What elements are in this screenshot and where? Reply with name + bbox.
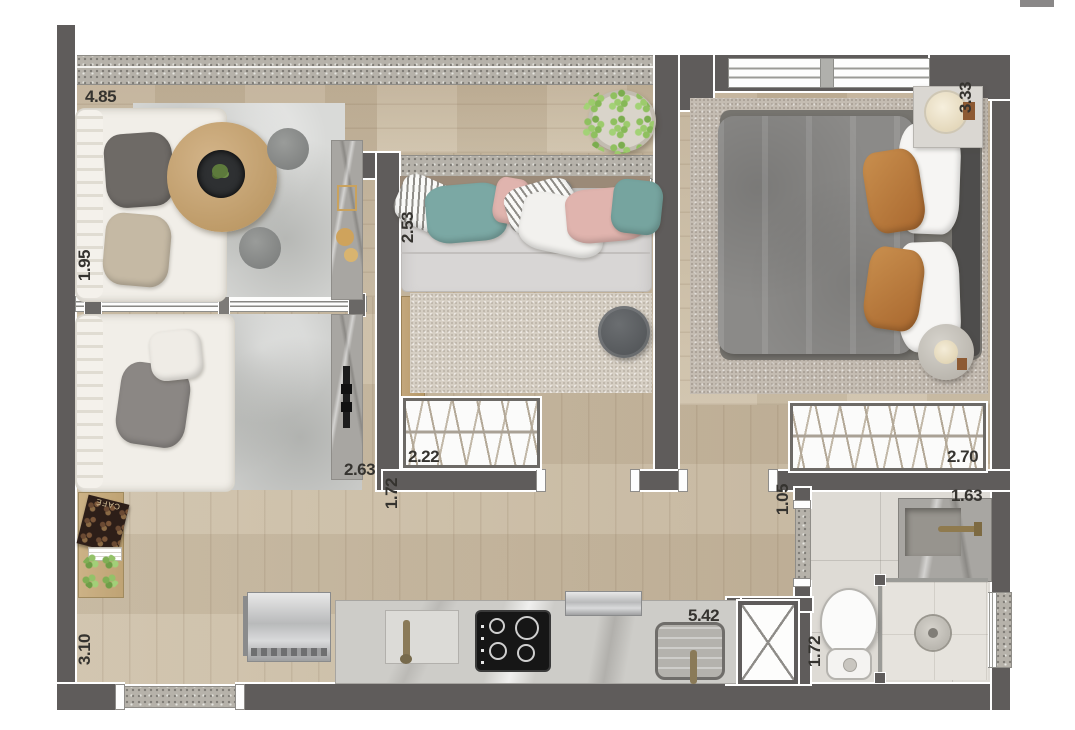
balcony-console xyxy=(331,140,363,300)
shower-glass-post-2 xyxy=(874,672,886,684)
counter-faucet xyxy=(403,620,410,658)
sideboard-plant xyxy=(80,552,122,592)
refrigerator-handle xyxy=(243,596,247,656)
pouf-gray-2 xyxy=(239,227,281,269)
bedroom1-door-jamb-left xyxy=(678,469,688,492)
dim-living-width: 2.63 xyxy=(344,461,375,478)
bath-faucet-base xyxy=(974,522,982,536)
shower-glass-post-1 xyxy=(874,574,886,586)
bath-door-jamb-bottom xyxy=(793,578,811,587)
dim-bath-width: 1.63 xyxy=(951,487,982,504)
bath-door-jamb-top xyxy=(793,500,811,509)
entry-threshold xyxy=(123,686,237,708)
wall-bottom-left xyxy=(57,684,123,710)
kitchen-appliance xyxy=(565,591,642,616)
counter-prep-board xyxy=(385,610,459,664)
dim-bedroom2-depth: 2.53 xyxy=(399,212,416,243)
dim-living-depth: 3.10 xyxy=(76,634,93,665)
bowl-plant xyxy=(212,164,228,178)
duct-shaft xyxy=(738,601,798,684)
dim-balcony-width: 4.85 xyxy=(85,88,116,105)
bathroom-threshold xyxy=(795,507,811,582)
burner-3 xyxy=(489,642,507,660)
stool-candle xyxy=(934,340,958,364)
cooktop xyxy=(477,612,549,670)
entry-jamb-right xyxy=(235,684,245,710)
gold-decor-2 xyxy=(344,248,358,262)
dim-bath-door: 1.05 xyxy=(774,484,791,515)
dim-bedroom1-depth: 3.33 xyxy=(957,82,974,113)
dim-hall-width: 1.72 xyxy=(383,478,400,509)
burner-2 xyxy=(515,616,539,640)
counter-faucet-base xyxy=(400,654,412,664)
dim-kitchen-length: 5.42 xyxy=(688,607,719,624)
wall-hall-1 xyxy=(383,471,543,490)
balcony-ledge-line xyxy=(75,66,655,68)
plant-leaves xyxy=(580,88,654,154)
dim-wardrobe2-width: 2.22 xyxy=(408,448,439,465)
pouf-gray-1 xyxy=(267,128,309,170)
bedroom2-pouf xyxy=(598,306,650,358)
balcony-ledge xyxy=(75,55,655,85)
wall-right-upper xyxy=(992,55,1010,592)
bath-basin xyxy=(905,508,961,556)
toilet-lid xyxy=(820,588,878,656)
shower-drain-center xyxy=(928,628,938,638)
wall-divider-bedrooms xyxy=(655,55,678,490)
stool-decor xyxy=(957,358,967,370)
tv xyxy=(343,366,350,428)
burner-1 xyxy=(489,618,505,634)
wall-right-lower xyxy=(992,668,1010,710)
toilet-flush-button xyxy=(843,658,857,672)
sofa-pillow-white xyxy=(148,327,205,382)
burner-4 xyxy=(517,644,535,662)
dim-balcony-depth: 1.95 xyxy=(76,250,93,281)
dim-bath-depth: 1.72 xyxy=(806,636,823,667)
bedroom2-sheet-fold xyxy=(401,252,650,254)
cushion-dark-gray xyxy=(103,131,176,210)
tv-mount-1 xyxy=(341,384,352,394)
bedroom1-window-stile xyxy=(820,58,834,88)
cushion-beige xyxy=(101,211,173,288)
dim-wardrobe1-width: 2.70 xyxy=(947,448,978,465)
living-sofa-back xyxy=(77,316,103,488)
tv-mount-2 xyxy=(341,402,352,412)
refrigerator-vent xyxy=(251,648,327,656)
gold-decor-1 xyxy=(336,228,354,246)
entry-jamb-left xyxy=(115,684,125,710)
wall-bottom xyxy=(237,684,1010,710)
gold-tray xyxy=(337,185,357,211)
bedroom2-door-jamb-right xyxy=(630,469,640,492)
kitchen-sink-faucet xyxy=(690,650,697,684)
bedroom2-door-jamb-left xyxy=(536,469,546,492)
wall-left xyxy=(57,25,75,710)
floor-plan: CAFÉ xyxy=(0,0,1075,730)
pillow-teal-2 xyxy=(609,178,664,237)
neighbor-unit-fragment xyxy=(1020,0,1054,7)
cooktop-knobs xyxy=(481,618,484,664)
